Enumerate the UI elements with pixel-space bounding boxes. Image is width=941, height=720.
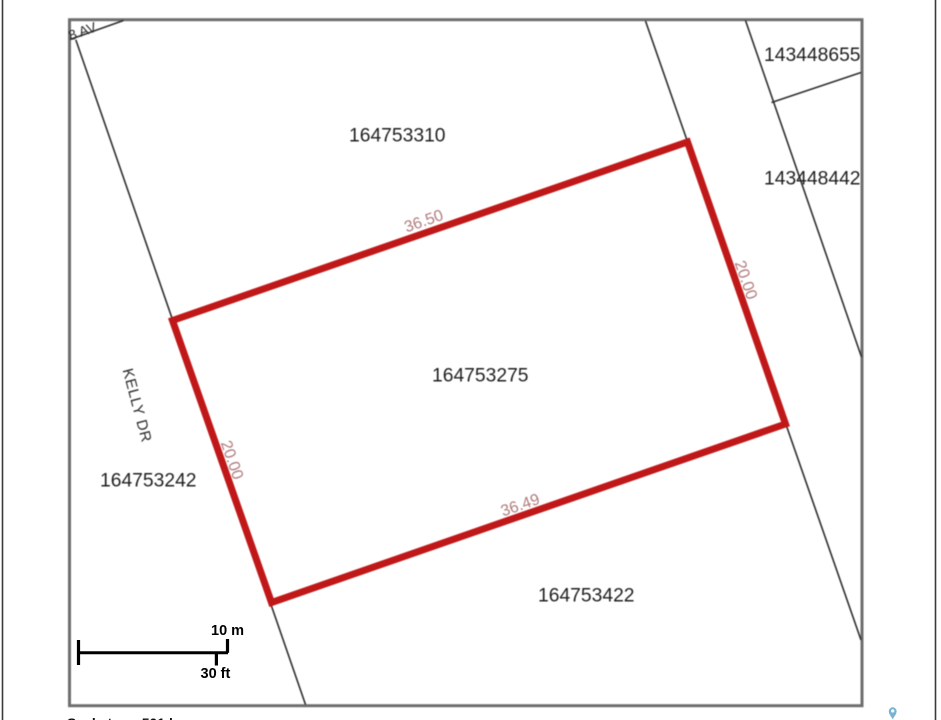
svg-text:143448655: 143448655: [764, 45, 861, 66]
svg-text:10 m: 10 m: [211, 623, 244, 639]
svg-text:Saskatoon 501 k: Saskatoon 501 k: [67, 715, 177, 720]
svg-text:164753422: 164753422: [538, 586, 635, 607]
svg-text:164753242: 164753242: [100, 471, 197, 492]
svg-text:143448442: 143448442: [764, 169, 861, 190]
svg-text:30 ft: 30 ft: [201, 666, 231, 682]
svg-text:164753310: 164753310: [349, 126, 446, 147]
svg-text:164753275: 164753275: [432, 366, 529, 387]
